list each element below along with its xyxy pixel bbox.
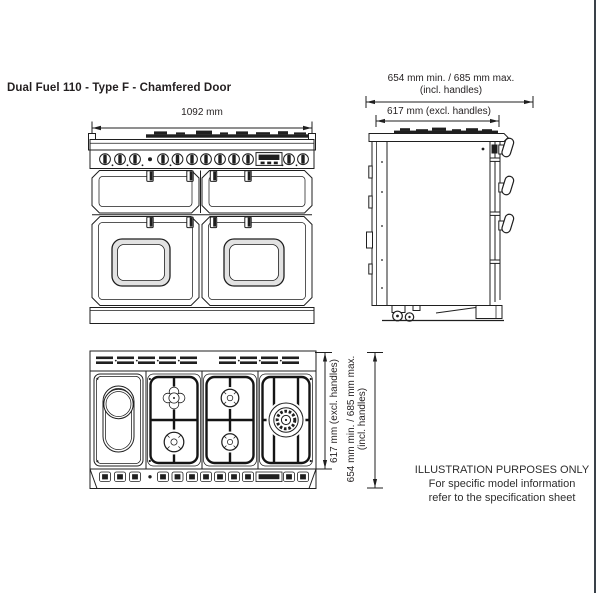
side-back-panel — [367, 142, 388, 306]
disclaimer-line-3: refer to the specification sheet — [414, 492, 590, 504]
plan-depth-incl-label: 654 mm min. / 685 mm max. (incl. handles… — [346, 344, 368, 494]
front-upper-doors — [92, 171, 312, 214]
page-title: Dual Fuel 110 - Type F - Chamfered Door — [7, 82, 231, 94]
front-oven-doors — [92, 217, 312, 306]
plan-depth-excl-label: 617 mm (excl. handles) — [329, 346, 341, 476]
page-edge-line — [594, 0, 596, 593]
side-depth-excl-dim-line — [376, 115, 499, 127]
disclaimer-line-2: For specific model information — [414, 478, 590, 490]
side-door-handles — [499, 137, 515, 234]
side-view-drawing — [358, 94, 543, 332]
front-plinth — [90, 308, 314, 324]
specification-page: Dual Fuel 110 - Type F - Chamfered Door … — [0, 0, 600, 593]
front-view-drawing — [86, 106, 318, 328]
disclaimer-line-1: ILLUSTRATION PURPOSES ONLY — [414, 464, 590, 476]
ignition-button-icon — [148, 157, 152, 161]
front-foot-icon — [476, 306, 502, 319]
plan-depth-incl-note-text: (incl. handles) — [357, 344, 368, 494]
plan-depth-incl-dim-line — [367, 353, 383, 489]
front-hob-top — [89, 131, 316, 150]
side-hob-top — [369, 128, 508, 142]
front-control-panel — [90, 150, 314, 169]
side-body — [387, 142, 500, 306]
side-depth-incl-label: 654 mm min. / 685 mm max. — [368, 73, 534, 84]
side-base — [382, 306, 504, 322]
side-depth-incl-dim-line — [366, 96, 533, 108]
plan-depth-incl-dim-text: 654 mm min. / 685 mm max. — [346, 344, 357, 494]
plan-view-drawing — [86, 348, 386, 494]
clock-display-icon — [256, 153, 282, 166]
